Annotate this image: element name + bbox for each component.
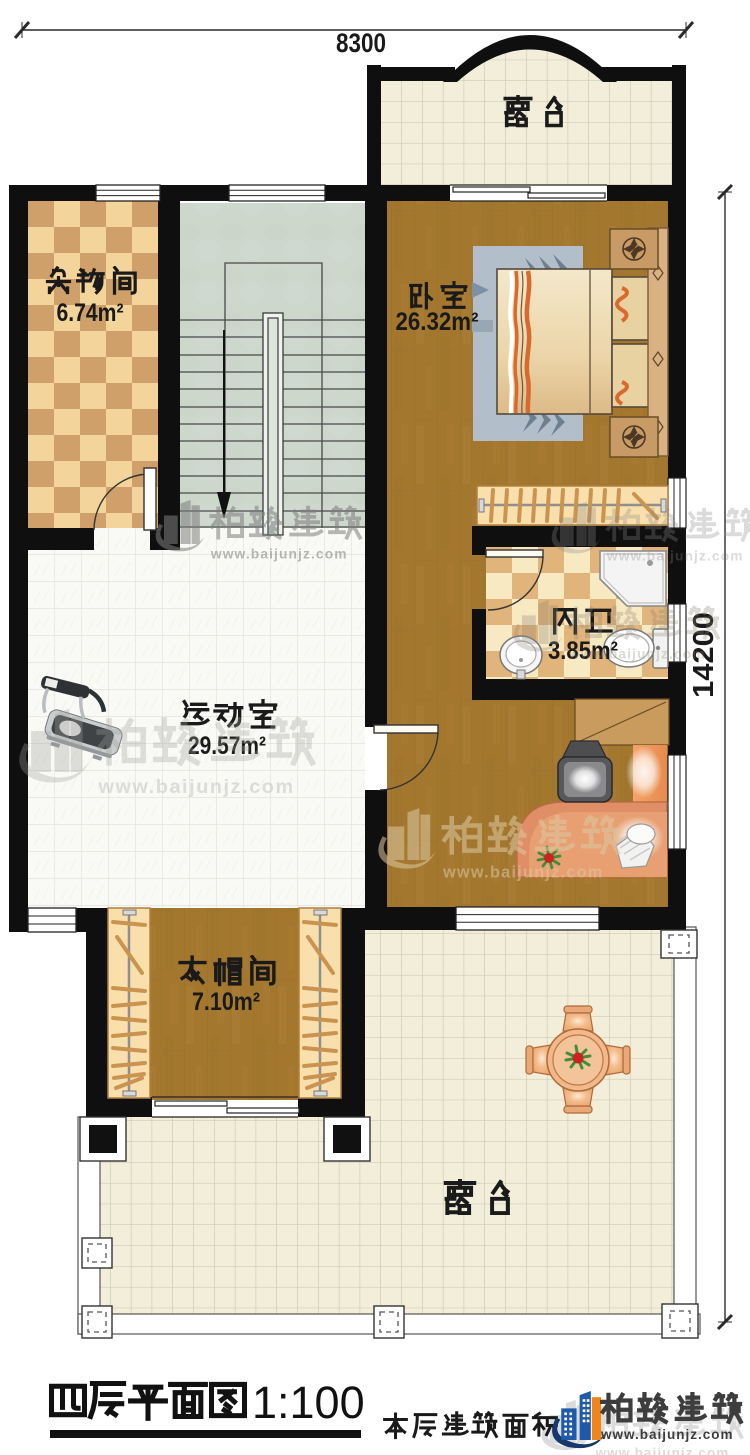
svg-text:26.32m²: 26.32m² (396, 308, 479, 336)
svg-text:8300: 8300 (336, 28, 386, 58)
svg-text:1:100: 1:100 (252, 1377, 365, 1428)
svg-text:7.10m²: 7.10m² (192, 988, 260, 1016)
svg-text:www.baijunjz.com: www.baijunjz.com (600, 1427, 734, 1442)
svg-text:6.74m²: 6.74m² (57, 299, 124, 327)
